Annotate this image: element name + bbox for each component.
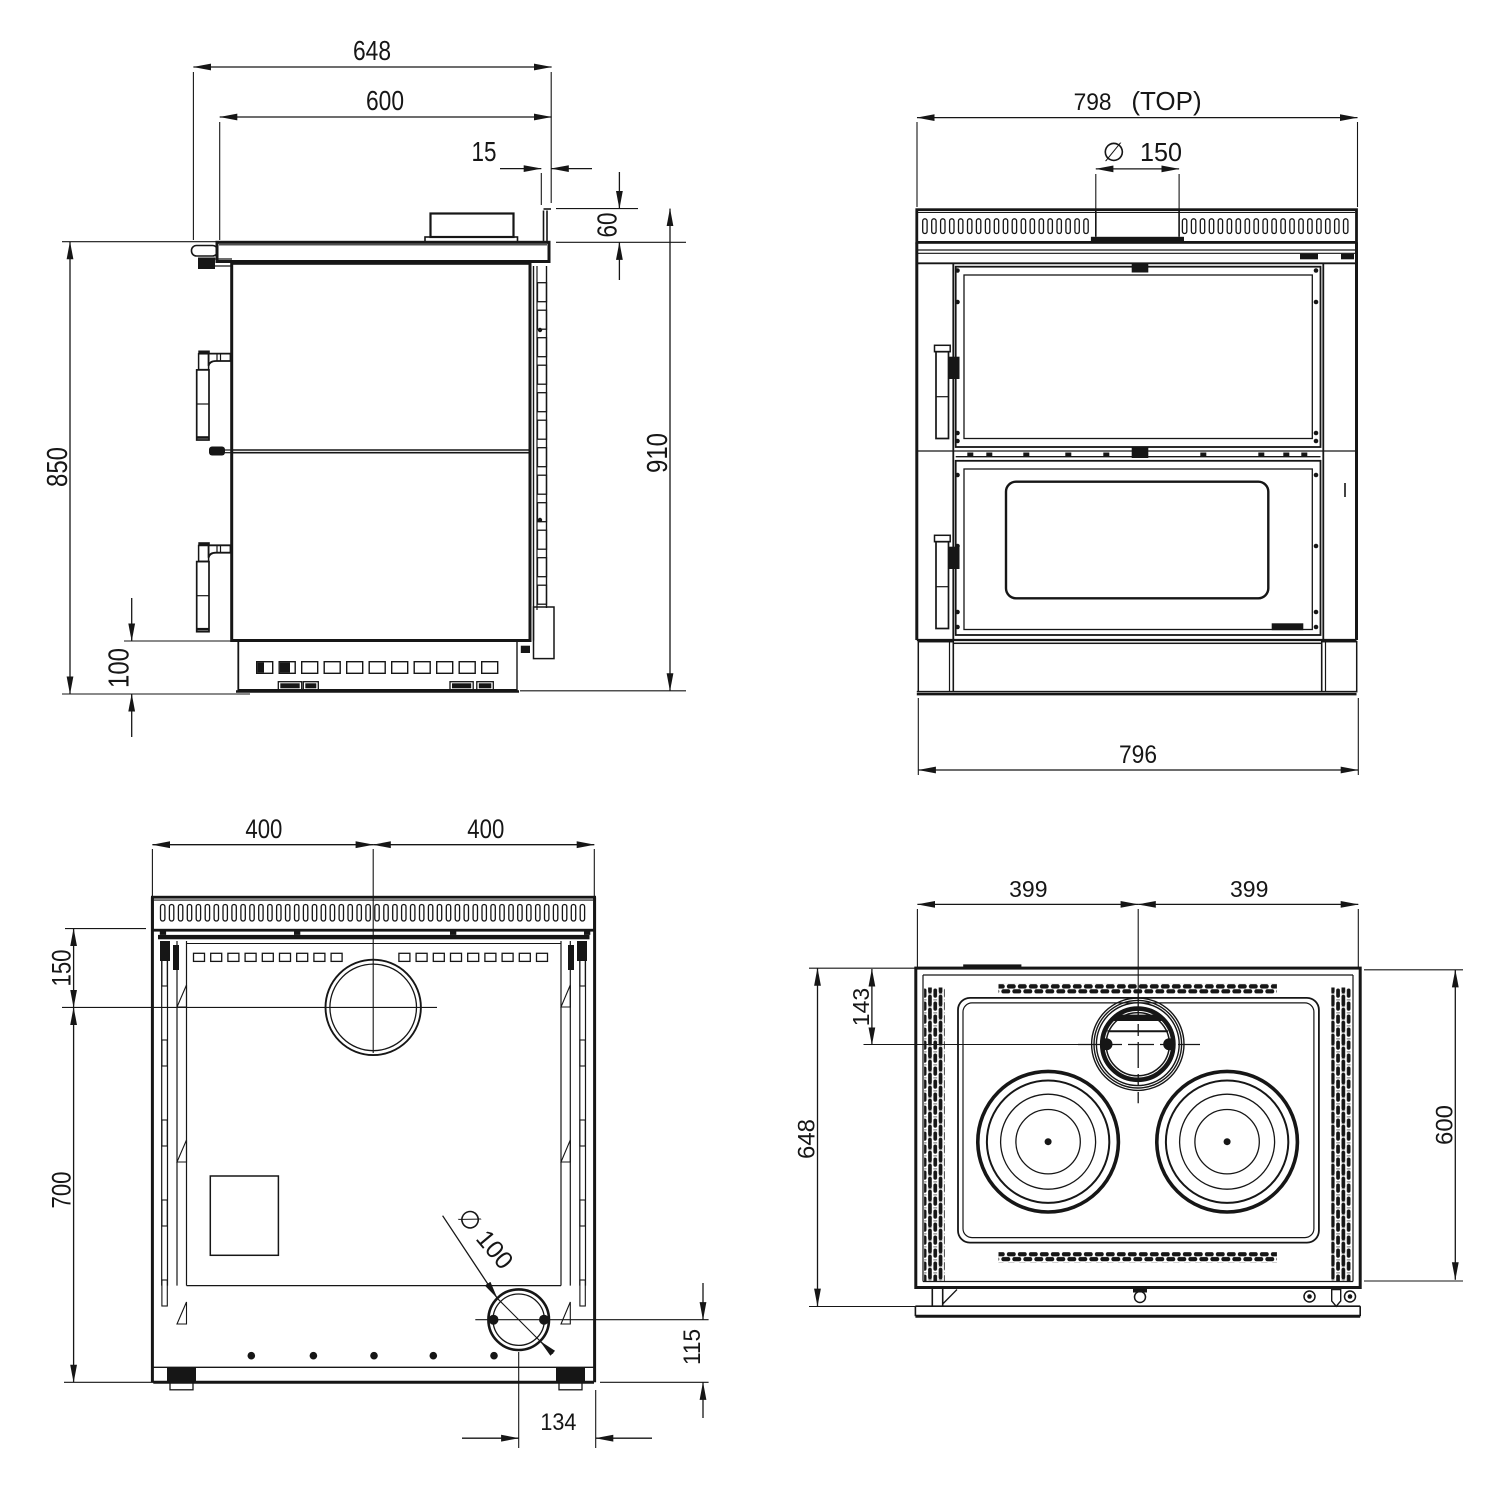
svg-text:648: 648 xyxy=(353,35,391,66)
svg-text:400: 400 xyxy=(245,814,282,844)
svg-text:850: 850 xyxy=(42,447,74,487)
svg-text:150: 150 xyxy=(1140,137,1182,167)
svg-text:910: 910 xyxy=(642,433,674,473)
svg-text:798: 798 xyxy=(1074,89,1112,116)
svg-text:400: 400 xyxy=(467,814,504,844)
svg-text:115: 115 xyxy=(679,1329,706,1365)
svg-text:60: 60 xyxy=(591,213,622,238)
svg-text:700: 700 xyxy=(47,1172,77,1209)
svg-text:600: 600 xyxy=(366,85,404,116)
svg-text:143: 143 xyxy=(848,988,874,1026)
svg-text:15: 15 xyxy=(472,136,497,167)
svg-text:399: 399 xyxy=(1009,876,1047,902)
svg-text:∅ 100: ∅ 100 xyxy=(452,1203,519,1275)
svg-text:796: 796 xyxy=(1119,741,1157,769)
svg-text:600: 600 xyxy=(1431,1105,1458,1145)
svg-text:(TOP): (TOP) xyxy=(1131,86,1201,116)
svg-text:134: 134 xyxy=(540,1409,576,1436)
svg-text:399: 399 xyxy=(1230,876,1268,902)
svg-text:648: 648 xyxy=(794,1119,821,1159)
svg-text:100: 100 xyxy=(104,648,136,688)
svg-text:∅: ∅ xyxy=(1102,137,1125,167)
svg-text:150: 150 xyxy=(47,950,77,987)
